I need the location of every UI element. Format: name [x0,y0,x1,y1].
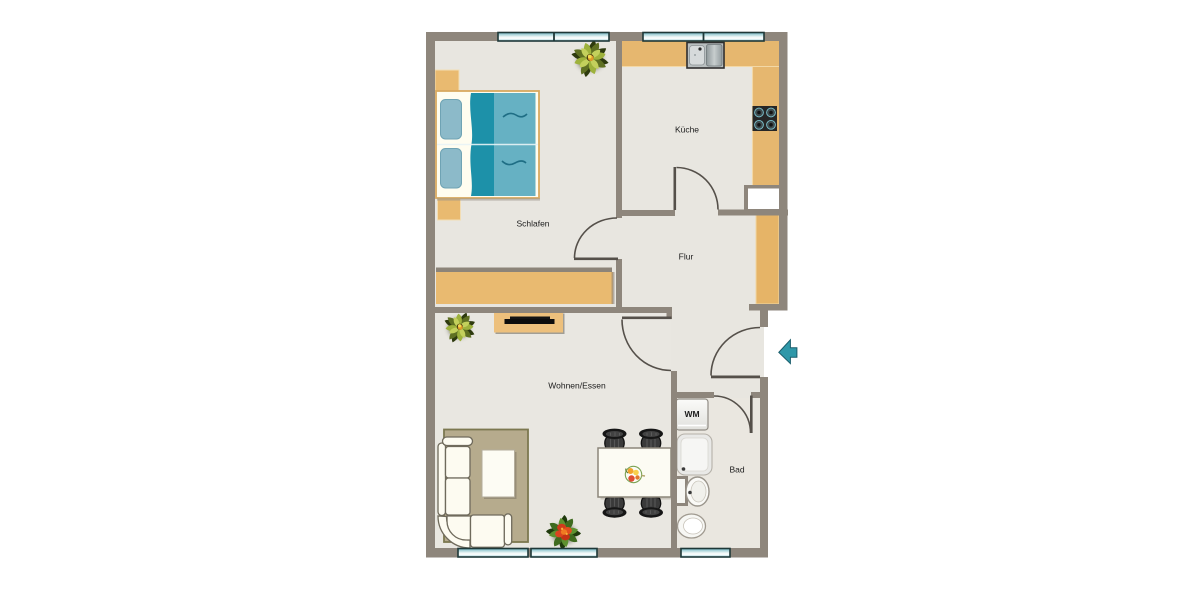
svg-text:Flur: Flur [679,252,694,262]
svg-text:Küche: Küche [675,125,699,135]
svg-text:Wohnen/Essen: Wohnen/Essen [548,381,606,391]
svg-text:WM: WM [684,409,699,419]
svg-text:Schlafen: Schlafen [516,219,549,229]
svg-text:Bad: Bad [729,465,744,475]
